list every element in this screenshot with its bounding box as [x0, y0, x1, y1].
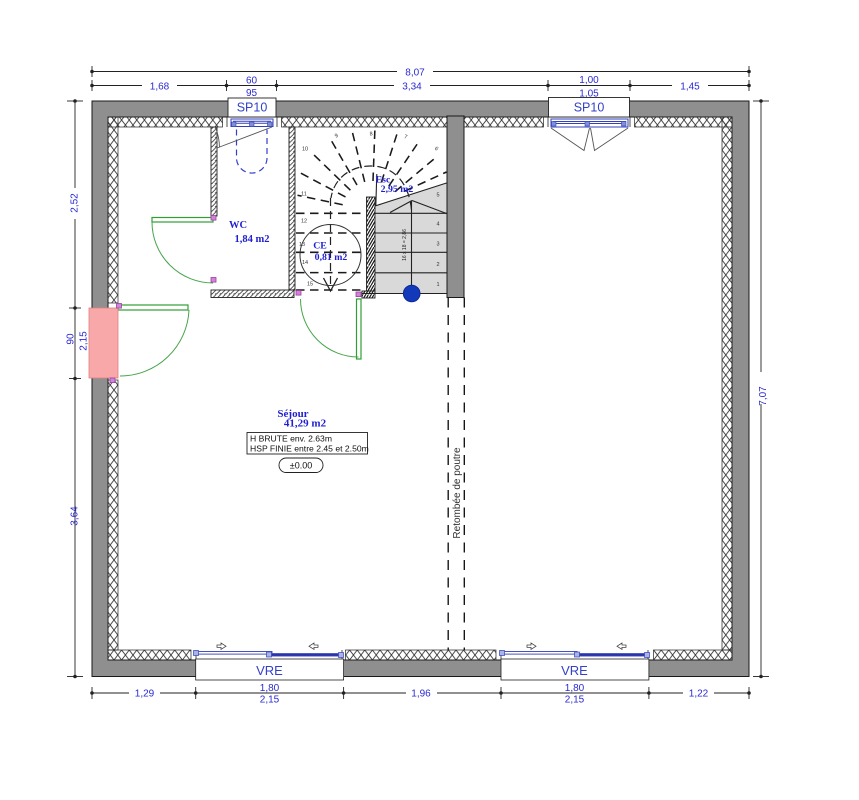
svg-text:41,29 m2: 41,29 m2 [284, 418, 327, 430]
svg-text:1: 1 [436, 282, 439, 288]
svg-text:SP10: SP10 [574, 101, 605, 115]
svg-text:CE: CE [313, 241, 327, 252]
svg-text:3,34: 3,34 [402, 82, 422, 93]
svg-text:3,64: 3,64 [70, 506, 81, 526]
svg-text:2,15: 2,15 [565, 695, 585, 706]
svg-text:1,84 m2: 1,84 m2 [235, 234, 270, 245]
svg-text:±0.00: ±0.00 [290, 461, 312, 471]
svg-text:11: 11 [301, 192, 307, 198]
svg-text:1,80: 1,80 [260, 683, 280, 694]
svg-text:2: 2 [436, 262, 439, 268]
svg-text:Retombée de poutre: Retombée de poutre [452, 447, 463, 539]
svg-text:2,15: 2,15 [79, 331, 90, 351]
svg-text:95: 95 [246, 88, 258, 99]
svg-text:1,00: 1,00 [579, 75, 599, 86]
svg-text:1,45: 1,45 [680, 82, 700, 93]
svg-text:1,80: 1,80 [565, 683, 585, 694]
svg-text:14: 14 [302, 260, 308, 266]
svg-text:16 x 18 = 2,86: 16 x 18 = 2,86 [402, 229, 408, 261]
svg-text:SP10: SP10 [237, 101, 268, 115]
svg-text:15: 15 [307, 282, 313, 288]
svg-text:10: 10 [302, 147, 308, 153]
svg-text:1,29: 1,29 [135, 689, 155, 700]
svg-text:60: 60 [246, 76, 258, 87]
svg-text:12: 12 [301, 219, 307, 225]
svg-text:8: 8 [369, 131, 373, 137]
svg-text:VRE: VRE [256, 663, 283, 678]
svg-text:VRE: VRE [561, 663, 588, 678]
svg-text:HSP FINIE entre 2.45 et 2.50m: HSP FINIE entre 2.45 et 2.50m [250, 444, 369, 454]
svg-text:1,96: 1,96 [411, 689, 431, 700]
svg-text:0,81 m2: 0,81 m2 [315, 252, 348, 263]
svg-text:1,05: 1,05 [579, 89, 599, 100]
svg-text:90: 90 [66, 333, 77, 345]
svg-text:8,07: 8,07 [405, 68, 425, 79]
svg-text:2,95 m2: 2,95 m2 [381, 184, 414, 195]
svg-text:4: 4 [436, 222, 439, 228]
svg-text:7,07: 7,07 [758, 386, 769, 406]
svg-text:1,22: 1,22 [689, 689, 709, 700]
svg-text:2,52: 2,52 [70, 193, 81, 213]
svg-text:H BRUTE env. 2.63m: H BRUTE env. 2.63m [250, 434, 332, 444]
svg-text:1,68: 1,68 [150, 82, 170, 93]
svg-text:5: 5 [436, 193, 439, 199]
svg-text:2,15: 2,15 [260, 695, 280, 706]
svg-text:3: 3 [436, 242, 439, 248]
svg-text:WC: WC [229, 220, 247, 231]
